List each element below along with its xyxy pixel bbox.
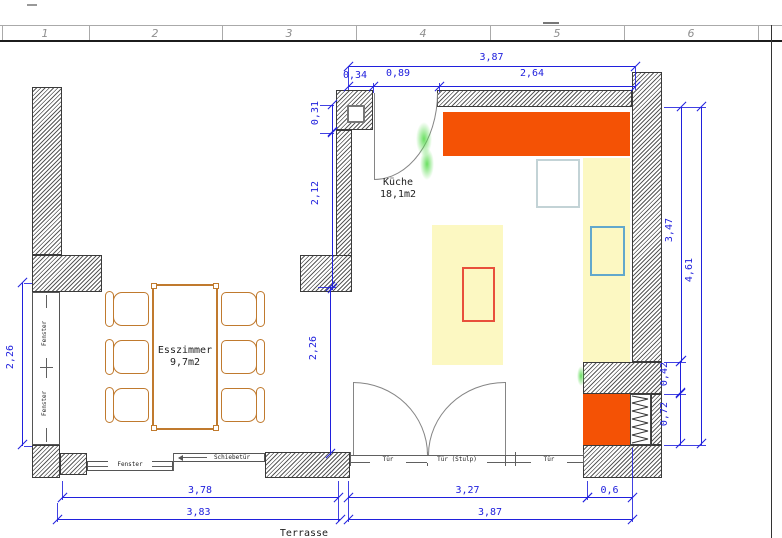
dimension-value[interactable]: 0,89 bbox=[378, 68, 418, 79]
chair[interactable] bbox=[220, 387, 266, 423]
chair-seat bbox=[221, 292, 257, 326]
sheet-border-right bbox=[771, 25, 772, 538]
dimension[interactable] bbox=[701, 107, 702, 445]
ruler-divider bbox=[89, 25, 90, 40]
dimension[interactable] bbox=[680, 394, 681, 445]
dimension-value: 3,78 bbox=[62, 485, 338, 496]
ruler-divider bbox=[222, 25, 223, 40]
table-corner bbox=[213, 283, 219, 289]
ruler-divider bbox=[356, 25, 357, 40]
kitchen-appliance[interactable] bbox=[536, 159, 580, 208]
dimension-value: 3,27 bbox=[348, 485, 587, 496]
ruler-top-line bbox=[0, 25, 782, 26]
chair[interactable] bbox=[220, 291, 266, 327]
chair-seat bbox=[113, 388, 149, 422]
kitchen-hob[interactable] bbox=[462, 267, 495, 322]
cad-drawing-canvas[interactable]: 1 2 3 4 5 6 Fenster Fenster Fenster Schi… bbox=[0, 0, 782, 538]
chair-seat bbox=[113, 292, 149, 326]
room-name: Esszimmer bbox=[158, 345, 212, 356]
table-corner bbox=[151, 283, 157, 289]
wall-segment-west-foot[interactable] bbox=[32, 255, 102, 292]
wall-segment-sw-corner2[interactable] bbox=[60, 453, 87, 475]
sill-divider bbox=[173, 453, 174, 471]
kitchen-cabinet-low[interactable] bbox=[583, 394, 630, 445]
dimension[interactable] bbox=[348, 86, 635, 87]
window-label[interactable]: Fenster bbox=[108, 461, 152, 468]
dim-tick bbox=[697, 439, 707, 449]
ruler-cell-label: 4 bbox=[403, 27, 443, 40]
dimension[interactable] bbox=[330, 287, 331, 455]
extension-line bbox=[24, 283, 32, 284]
wall-segment-sw-corner[interactable] bbox=[32, 445, 60, 478]
ruler-cell-label: 2 bbox=[135, 27, 175, 40]
room-area: 9,7m2 bbox=[170, 357, 200, 368]
dimension-value[interactable]: 0,34 bbox=[340, 70, 370, 81]
chair-back bbox=[256, 339, 265, 375]
room-area: 18,1m2 bbox=[380, 189, 416, 200]
extension-line bbox=[632, 448, 633, 522]
dimension-value: 3,83 bbox=[57, 507, 340, 518]
ruler-cell-label: 3 bbox=[269, 27, 309, 40]
room-name: Küche bbox=[383, 177, 413, 188]
selection-highlight bbox=[420, 148, 434, 180]
dimension-value: 3,87 bbox=[348, 52, 635, 63]
door-leaf[interactable] bbox=[505, 382, 506, 455]
dimension[interactable]: 0,6 bbox=[587, 497, 632, 498]
window-label[interactable]: Fenster bbox=[41, 378, 48, 428]
wall-pillar-niche bbox=[347, 105, 365, 123]
chair-back bbox=[256, 387, 265, 423]
dimension[interactable] bbox=[332, 133, 333, 290]
wall-segment-se-corner[interactable] bbox=[583, 445, 662, 478]
extension-line bbox=[24, 446, 32, 447]
dimension-value[interactable]: 3,47 bbox=[664, 218, 675, 242]
chair-seat bbox=[221, 340, 257, 374]
chair-back bbox=[256, 291, 265, 327]
chair-seat bbox=[113, 340, 149, 374]
ruler-cell-label: 5 bbox=[537, 27, 577, 40]
dimension[interactable]: 3,87 bbox=[348, 519, 632, 520]
sill-divider bbox=[515, 452, 516, 466]
sliding-door-arrow-line bbox=[181, 457, 207, 458]
dim-tick bbox=[676, 439, 686, 449]
ruler-cell-label: 6 bbox=[671, 27, 711, 40]
ruler-divider bbox=[490, 25, 491, 40]
chair[interactable] bbox=[220, 339, 266, 375]
dining-table[interactable]: Esszimmer 9,7m2 bbox=[152, 284, 218, 430]
table-corner bbox=[151, 425, 157, 431]
wall-segment-nw-strip[interactable] bbox=[336, 130, 352, 258]
wall-segment-east[interactable] bbox=[632, 72, 662, 362]
sliding-door-arrowhead bbox=[178, 455, 183, 461]
ruler-divider bbox=[2, 25, 3, 40]
sill-divider bbox=[350, 452, 351, 466]
dimension-value: 3,87 bbox=[348, 507, 632, 518]
table-corner bbox=[213, 425, 219, 431]
dimension[interactable]: 3,78 bbox=[62, 497, 338, 498]
radiator[interactable] bbox=[630, 394, 651, 445]
terrace-label[interactable]: Terrasse bbox=[268, 528, 340, 538]
ruler-divider bbox=[624, 25, 625, 40]
dimension[interactable]: 3,27 bbox=[348, 497, 587, 498]
dimension[interactable] bbox=[681, 107, 682, 362]
ruler-bottom-line bbox=[0, 40, 782, 42]
chair[interactable] bbox=[104, 387, 150, 423]
dimension[interactable]: 3,83 bbox=[57, 519, 340, 520]
door-swing-arc bbox=[428, 382, 505, 455]
wall-segment-west-upper[interactable] bbox=[32, 87, 62, 255]
ruler-divider bbox=[758, 25, 759, 40]
radiator-zigzag bbox=[631, 395, 650, 444]
dimension-value[interactable]: 2,64 bbox=[510, 68, 554, 79]
sliding-door-label[interactable]: Schiebetür bbox=[208, 454, 256, 461]
door-label[interactable]: Tür (Stulp) bbox=[427, 456, 487, 463]
dimension-value[interactable]: 4,61 bbox=[684, 258, 695, 282]
door-label[interactable]: Tür bbox=[531, 456, 567, 463]
wall-segment-kitchen-north[interactable] bbox=[437, 90, 632, 107]
dimension-value[interactable]: 2,12 bbox=[310, 181, 321, 205]
chair[interactable] bbox=[104, 339, 150, 375]
dim-tick bbox=[18, 440, 28, 450]
ruler-cell-label: 1 bbox=[25, 27, 65, 40]
kitchen-counter[interactable] bbox=[443, 112, 630, 156]
chair-seat bbox=[221, 388, 257, 422]
door-swing-arc bbox=[353, 382, 428, 455]
ruler-mark bbox=[543, 22, 559, 24]
dimension-value: 0,6 bbox=[587, 485, 632, 496]
dimension-value[interactable]: 2,26 bbox=[5, 345, 16, 369]
dimension-value[interactable]: 2,26 bbox=[308, 336, 319, 360]
room-label-dining[interactable]: Esszimmer 9,7m2 bbox=[158, 345, 212, 369]
kitchen-sink[interactable] bbox=[590, 226, 625, 276]
room-label-kitchen[interactable]: Küche 18,1m2 bbox=[366, 177, 430, 201]
dimension-value[interactable]: 0,31 bbox=[310, 101, 321, 125]
wall-segment-east-protrusion[interactable] bbox=[583, 362, 662, 394]
sill-divider bbox=[583, 452, 584, 466]
dimension-value[interactable]: 0,72 bbox=[659, 402, 670, 426]
window-west-mid-tick bbox=[40, 367, 53, 368]
wall-segment-south-mid[interactable] bbox=[265, 452, 350, 478]
dimension-value[interactable]: 0,42 bbox=[659, 362, 670, 386]
dimension[interactable] bbox=[332, 105, 333, 133]
window-label[interactable]: Fenster bbox=[41, 308, 48, 358]
extension-line bbox=[664, 394, 686, 395]
dimension[interactable] bbox=[680, 362, 681, 394]
dimension[interactable] bbox=[22, 283, 23, 446]
ruler-mark bbox=[27, 4, 37, 6]
chair[interactable] bbox=[104, 291, 150, 327]
door-label[interactable]: Tür bbox=[370, 456, 406, 463]
selection-highlight bbox=[577, 366, 585, 386]
dimension[interactable]: 3,87 bbox=[348, 66, 635, 67]
